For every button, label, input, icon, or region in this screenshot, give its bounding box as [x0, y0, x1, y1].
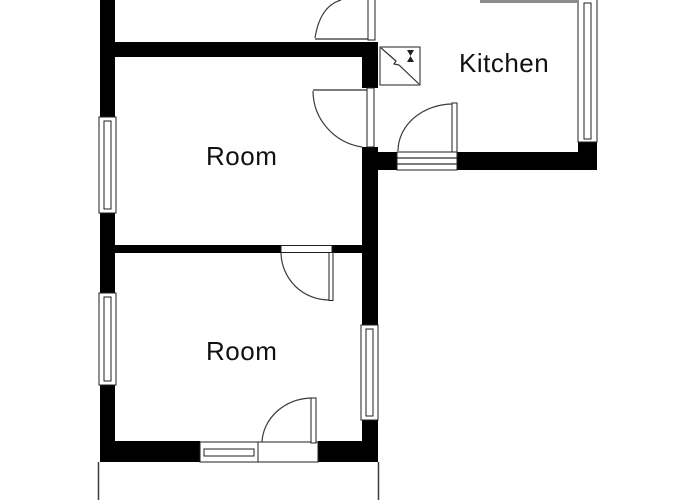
wall-bottom-right: [318, 441, 362, 462]
wall-top: [100, 42, 378, 57]
door-top-swing-arc: [315, 0, 341, 38]
door-upper-room-jamb: [367, 88, 374, 147]
floor-plan-svg: Kitchen Room Room: [0, 0, 700, 500]
door-kitchen-leaf: [452, 103, 457, 152]
wall-kitchen-corner: [578, 142, 597, 170]
floor-plan-canvas: Kitchen Room Room: [0, 0, 700, 500]
door-bottom-leaf: [311, 398, 316, 443]
door-top-jamb: [368, 0, 375, 40]
door-upper-room: [313, 88, 374, 147]
wall-bottom-left: [100, 441, 200, 462]
cropped-wall-segment: [480, 0, 577, 3]
wall-center-middle: [362, 147, 378, 325]
sink-unit: [380, 47, 420, 85]
wall-left-middle: [100, 213, 115, 293]
wall-left-upper: [100, 0, 115, 117]
door-top: [315, 0, 375, 40]
window-bottom: [200, 442, 258, 462]
wall-kitchen-stub: [378, 152, 397, 170]
door-between-rooms-leaf: [329, 253, 333, 301]
wall-center-upper: [362, 42, 378, 88]
room-label-lower-room: Room: [206, 336, 277, 366]
window-right-lower: [361, 325, 378, 420]
window-kitchen-right: [578, 0, 597, 142]
window-left-upper: [99, 117, 116, 213]
door-bottom-swing-arc: [262, 398, 311, 442]
room-label-kitchen: Kitchen: [459, 48, 549, 78]
door-between-rooms-swing-arc: [281, 253, 329, 300]
door-bottom: [258, 398, 318, 462]
door-between-rooms: [281, 246, 333, 301]
door-upper-room-swing-arc: [313, 91, 362, 147]
wall-interior-right: [332, 245, 362, 253]
door-kitchen-swing-arc: [398, 104, 452, 151]
wall-kitchen-bottom: [457, 152, 597, 170]
room-label-upper-room: Room: [206, 141, 277, 171]
door-kitchen-threshold: [397, 152, 457, 170]
door-kitchen: [397, 103, 457, 170]
door-bottom-threshold: [258, 442, 318, 462]
door-between-rooms-head: [281, 246, 332, 253]
lower-outline: [99, 462, 379, 500]
wall-center-lower: [362, 420, 378, 462]
wall-interior-left: [115, 245, 281, 253]
window-left-lower: [99, 293, 116, 385]
